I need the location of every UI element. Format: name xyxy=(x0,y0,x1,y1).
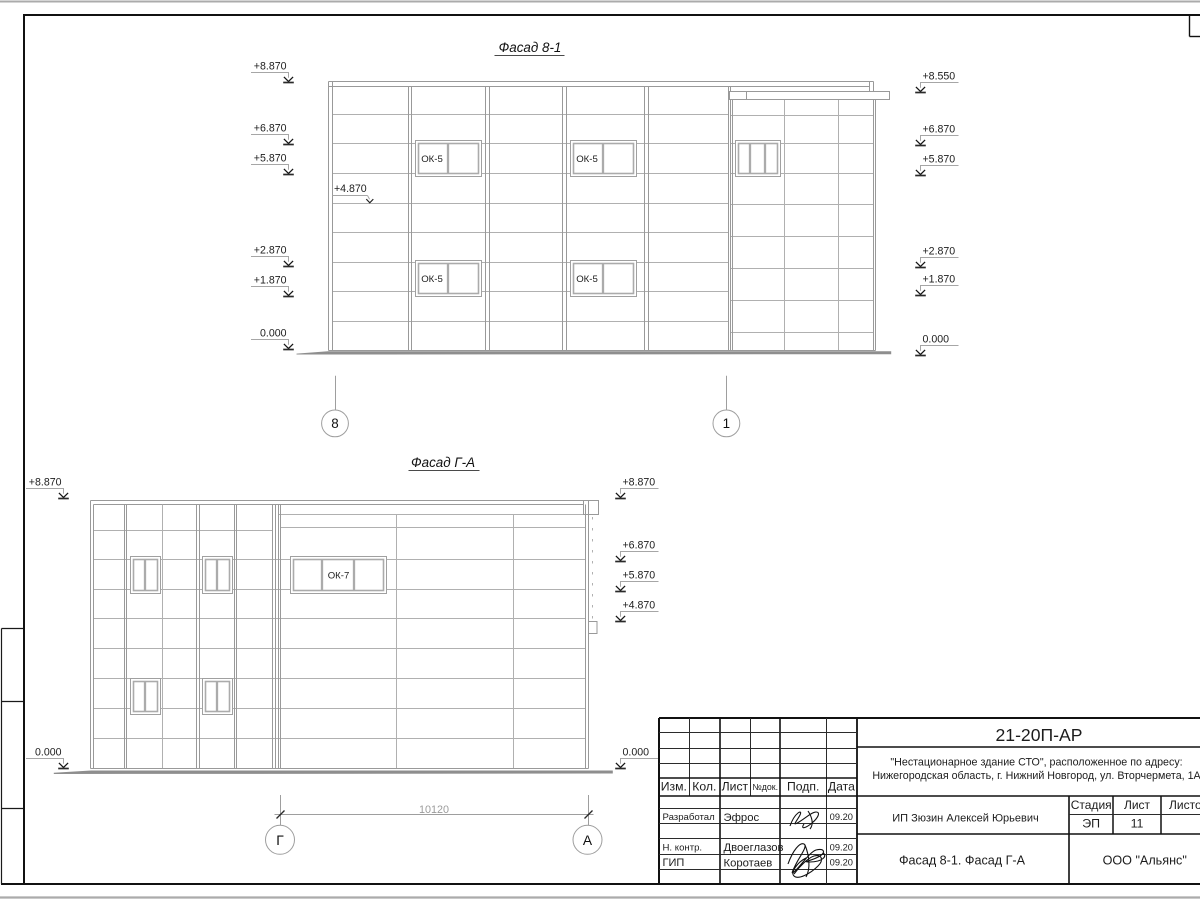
svg-text:Г: Г xyxy=(276,833,284,848)
svg-text:ОК-7: ОК-7 xyxy=(328,571,350,582)
svg-text:+2.870: +2.870 xyxy=(254,245,287,257)
svg-text:+6.870: +6.870 xyxy=(254,123,287,135)
svg-text:09.20: 09.20 xyxy=(830,858,853,868)
svg-text:Н. контр.: Н. контр. xyxy=(663,842,703,853)
svg-text:21-20П-АР: 21-20П-АР xyxy=(996,725,1083,745)
svg-text:Подп.: Подп. xyxy=(787,780,819,794)
svg-text:1: 1 xyxy=(723,416,730,431)
svg-text:+8.870: +8.870 xyxy=(254,61,287,73)
svg-text:ОК-5: ОК-5 xyxy=(576,274,598,285)
svg-text:+8.870: +8.870 xyxy=(29,477,62,489)
svg-text:11: 11 xyxy=(1131,816,1144,830)
svg-text:+5.870: +5.870 xyxy=(254,153,287,165)
svg-text:0.000: 0.000 xyxy=(35,747,62,759)
svg-text:09.20: 09.20 xyxy=(830,812,853,822)
svg-text:+6.870: +6.870 xyxy=(623,540,656,552)
svg-text:А: А xyxy=(583,833,593,848)
svg-text:ОК-5: ОК-5 xyxy=(421,154,443,165)
svg-text:Дата: Дата xyxy=(828,780,855,794)
svg-text:+8.550: +8.550 xyxy=(923,71,956,83)
svg-text:ОК-5: ОК-5 xyxy=(576,154,598,165)
svg-text:+5.870: +5.870 xyxy=(923,154,956,166)
svg-text:+8.870: +8.870 xyxy=(623,477,656,489)
svg-text:+4.870: +4.870 xyxy=(334,183,367,195)
svg-text:+6.870: +6.870 xyxy=(923,124,956,136)
svg-text:ГИП: ГИП xyxy=(663,857,685,869)
svg-text:Фасад Г-А: Фасад Г-А xyxy=(411,455,475,470)
svg-text:Эфрос: Эфрос xyxy=(724,812,760,824)
svg-text:Стадия: Стадия xyxy=(1071,798,1112,812)
svg-text:0.000: 0.000 xyxy=(923,334,950,346)
svg-text:Лист: Лист xyxy=(722,780,749,794)
svg-text:Коротаев: Коротаев xyxy=(724,857,773,869)
svg-text:Двоеглазов: Двоеглазов xyxy=(724,842,784,854)
svg-text:8: 8 xyxy=(331,416,338,431)
svg-text:Нижегородская область, г. Нижн: Нижегородская область, г. Нижний Новгоро… xyxy=(872,770,1200,782)
svg-text:Листов: Листов xyxy=(1169,798,1200,812)
svg-text:0.000: 0.000 xyxy=(260,328,287,340)
svg-text:ООО "Альянс": ООО "Альянс" xyxy=(1103,854,1187,868)
svg-text:Кол.: Кол. xyxy=(692,780,716,794)
svg-text:Изм.: Изм. xyxy=(661,780,687,794)
svg-text:0.000: 0.000 xyxy=(623,747,650,759)
svg-text:10120: 10120 xyxy=(419,804,449,816)
svg-text:+1.870: +1.870 xyxy=(254,275,287,287)
svg-text:Фасад 8-1: Фасад 8-1 xyxy=(499,40,562,55)
svg-text:"Нестационарное здание СТО", р: "Нестационарное здание СТО", расположенн… xyxy=(890,757,1182,769)
svg-text:09.20: 09.20 xyxy=(830,842,853,852)
svg-text:+4.870: +4.870 xyxy=(623,600,656,612)
svg-text:ЭП: ЭП xyxy=(1082,816,1100,830)
svg-text:+5.870: +5.870 xyxy=(623,570,656,582)
svg-text:+1.870: +1.870 xyxy=(923,274,956,286)
svg-text:ОК-5: ОК-5 xyxy=(421,274,443,285)
svg-text:ИП Зюзин Алексей Юрьевич: ИП Зюзин Алексей Юрьевич xyxy=(892,812,1039,824)
svg-text:Фасад 8-1. Фасад Г-А: Фасад 8-1. Фасад Г-А xyxy=(899,854,1026,868)
svg-text:Разработал: Разработал xyxy=(663,812,715,823)
svg-text:№док.: №док. xyxy=(752,782,778,792)
svg-text:Лист: Лист xyxy=(1124,798,1151,812)
svg-text:+2.870: +2.870 xyxy=(923,246,956,258)
